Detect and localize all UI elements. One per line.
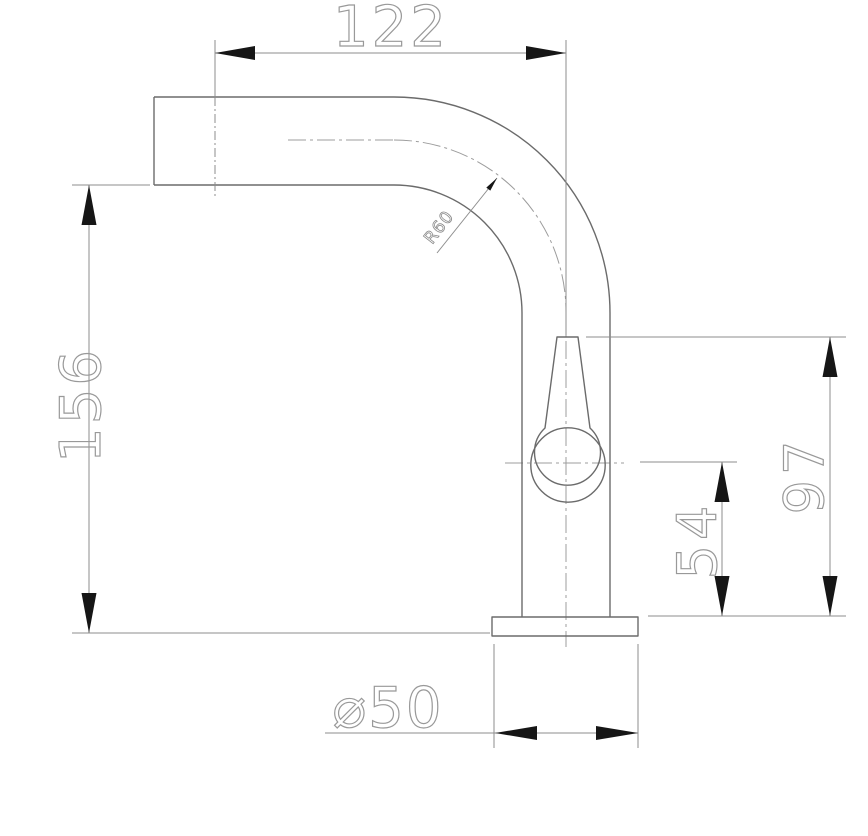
dim-text-r60: R60 — [420, 207, 458, 248]
arrowhead-bottom — [715, 576, 730, 616]
centerlines — [288, 140, 624, 647]
dim-text-97: 97 — [773, 436, 836, 515]
arrowhead-radius — [486, 178, 497, 191]
dimension-base-diameter: ⌀50 — [325, 644, 638, 748]
handle-boss-circle — [531, 428, 605, 502]
arrowhead-bottom — [823, 576, 838, 616]
arrowhead-right — [526, 46, 566, 60]
arrowhead-left — [495, 726, 537, 740]
faucet-drawing: 122 156 97 54 ⌀50 R60 — [0, 0, 868, 836]
tube-inner-edge — [154, 185, 522, 617]
arrowhead-left — [215, 46, 255, 60]
arrowhead-top — [715, 462, 730, 502]
dim-text-54: 54 — [666, 501, 729, 580]
drawing-canvas: 122 156 97 54 ⌀50 R60 — [0, 0, 868, 836]
dim-text-diameter-50: ⌀50 — [333, 676, 444, 741]
tube-outer-edge — [154, 97, 610, 617]
dimension-bend-radius: R60 — [420, 178, 497, 253]
bend-centerline-arc — [394, 140, 566, 312]
base-flange — [492, 617, 638, 636]
dimension-spout-reach: 122 — [215, 0, 566, 335]
dimension-overall-height: 156 — [49, 185, 490, 633]
arrowhead-right — [596, 726, 638, 740]
faucet-body — [154, 97, 638, 636]
arrowhead-top — [82, 185, 97, 225]
arrowhead-bottom — [82, 593, 97, 633]
dim-text-122: 122 — [333, 0, 449, 60]
arrowhead-top — [823, 337, 838, 377]
dim-text-156: 156 — [49, 347, 114, 463]
dimension-handle-center-height: 54 — [640, 462, 737, 616]
